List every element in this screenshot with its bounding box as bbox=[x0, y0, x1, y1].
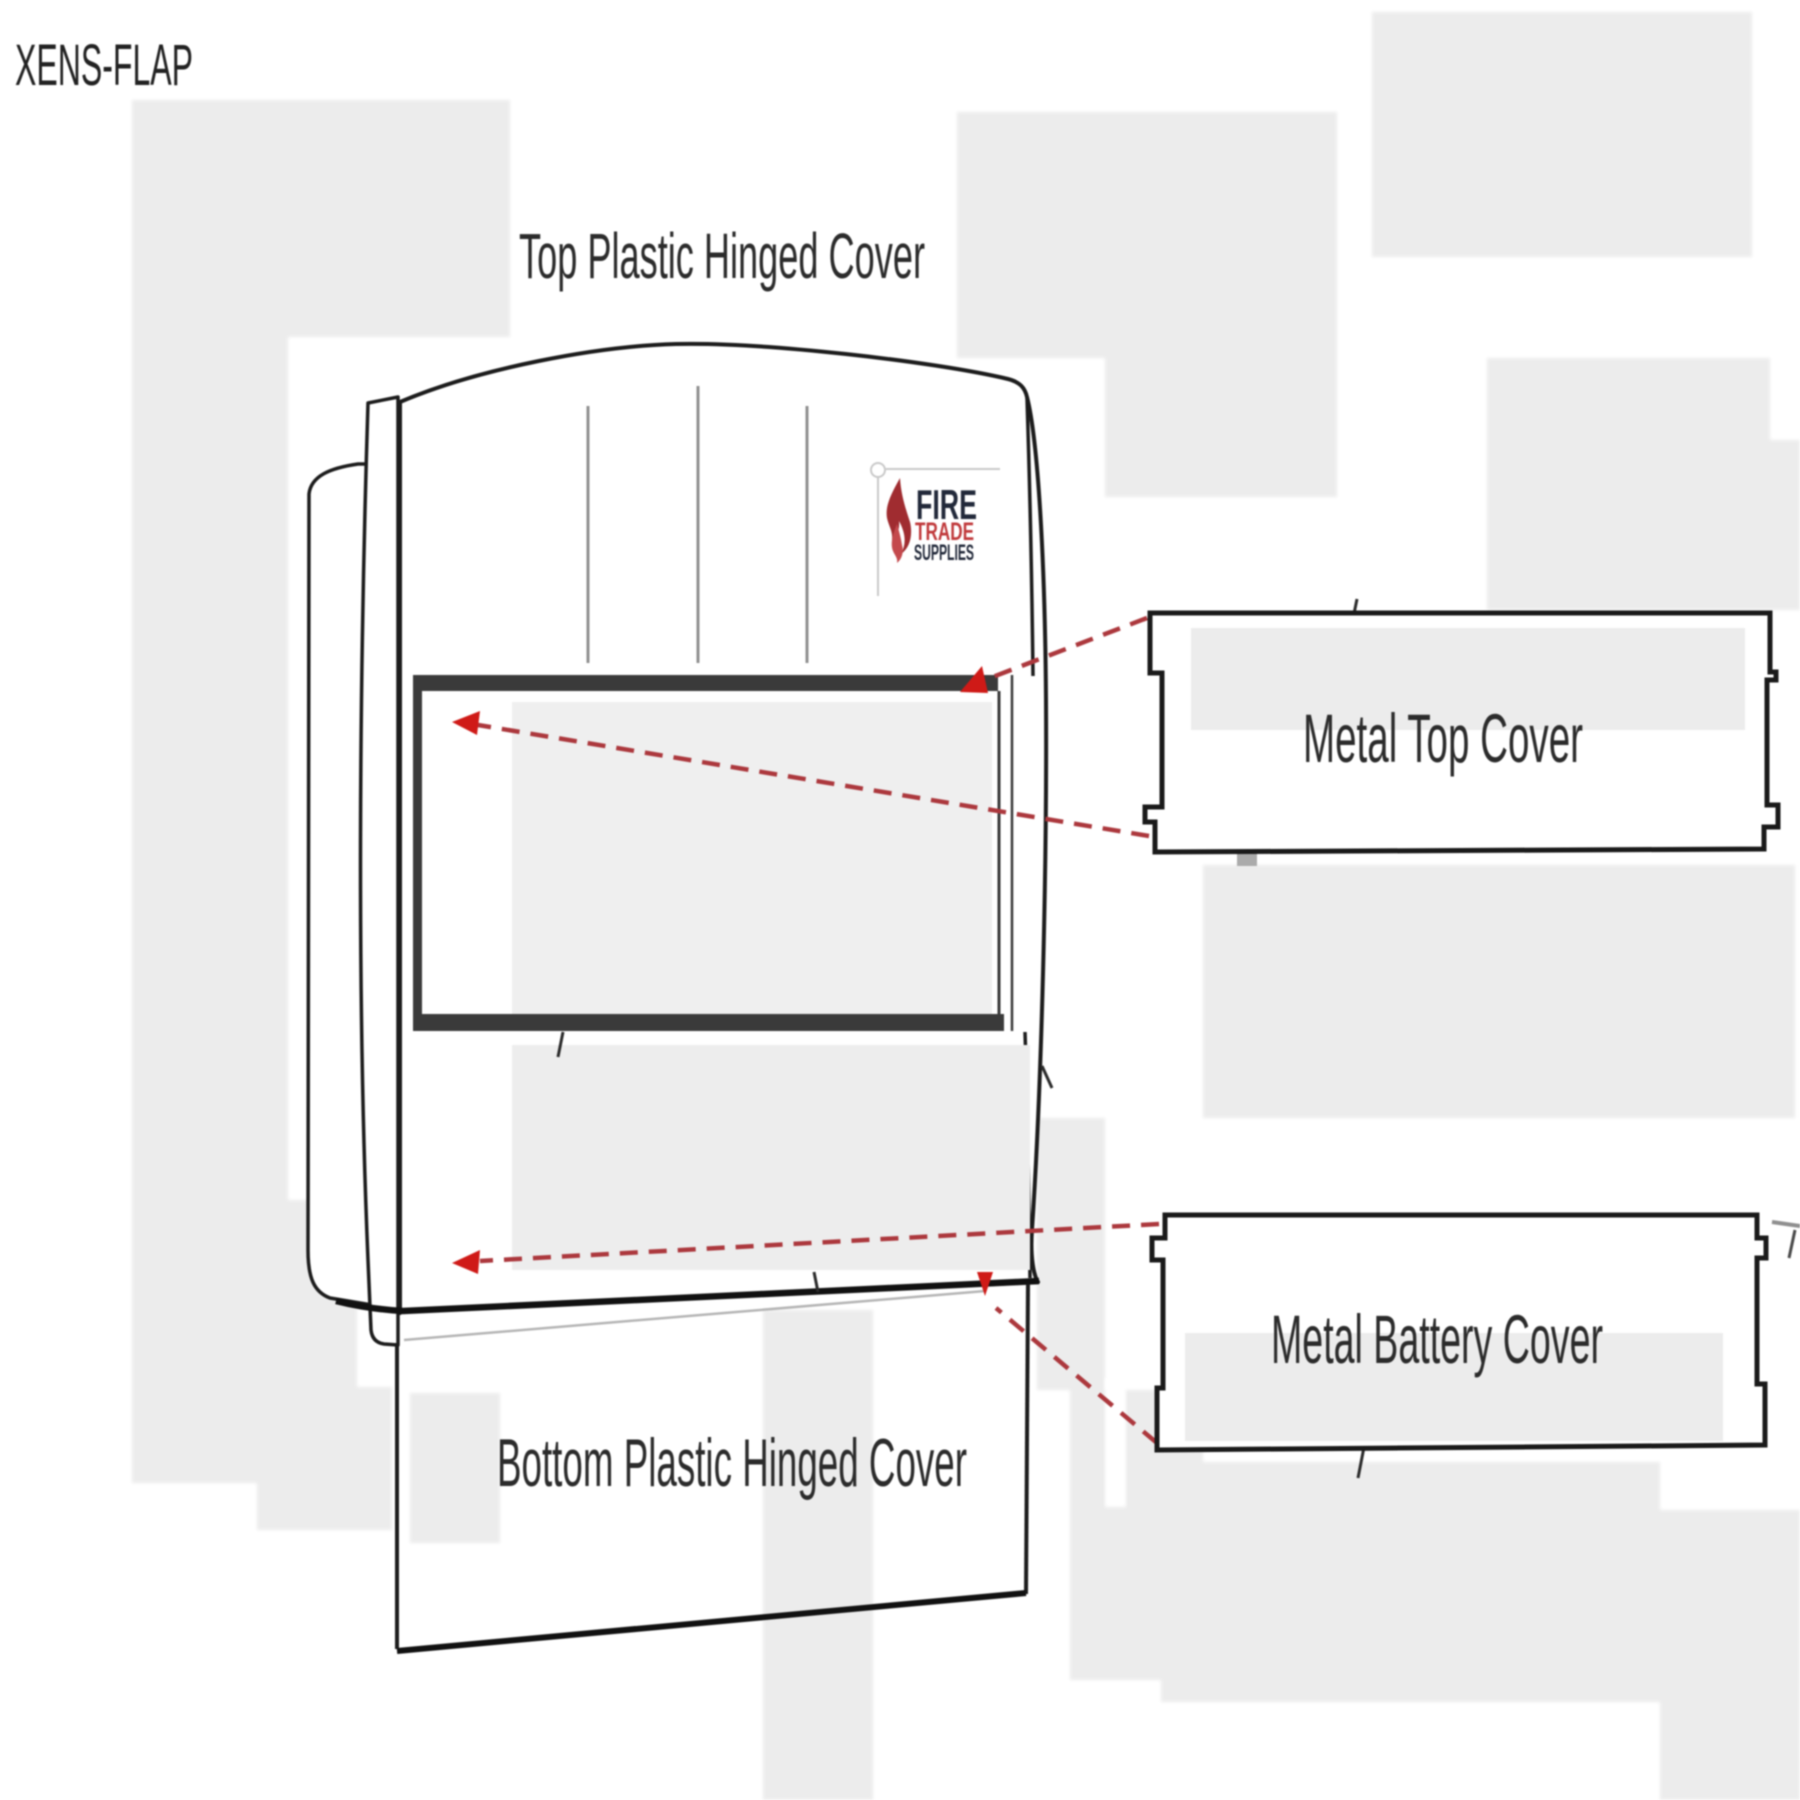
svg-text:Metal Battery Cover: Metal Battery Cover bbox=[1271, 1301, 1603, 1378]
svg-text:XENS-FLAP: XENS-FLAP bbox=[15, 33, 193, 98]
svg-text:Metal Top Cover: Metal Top Cover bbox=[1303, 700, 1583, 777]
svg-text:SUPPLIES: SUPPLIES bbox=[914, 540, 974, 565]
svg-text:Bottom Plastic Hinged Cover: Bottom Plastic Hinged Cover bbox=[497, 1425, 967, 1501]
svg-text:Top Plastic Hinged Cover: Top Plastic Hinged Cover bbox=[519, 220, 925, 292]
